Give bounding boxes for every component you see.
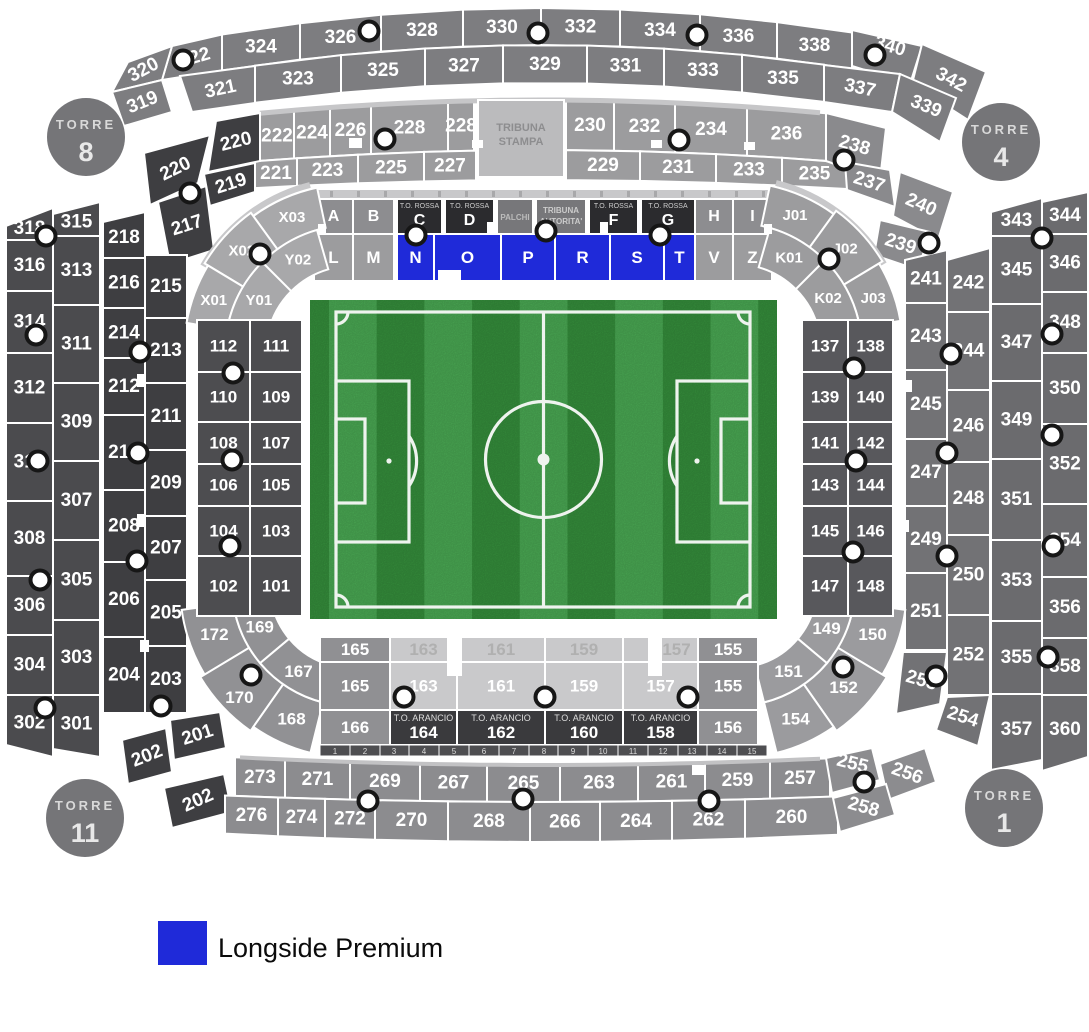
svg-text:149: 149 (812, 619, 840, 638)
svg-text:161: 161 (487, 677, 515, 696)
svg-text:207: 207 (150, 538, 182, 559)
svg-text:165: 165 (341, 640, 369, 659)
svg-text:334: 334 (644, 20, 676, 41)
svg-text:T.O. ARANCIO: T.O. ARANCIO (631, 713, 691, 723)
svg-text:338: 338 (799, 35, 831, 56)
svg-text:11: 11 (71, 818, 100, 848)
svg-text:224: 224 (296, 123, 328, 144)
svg-text:144: 144 (856, 476, 885, 495)
svg-text:5: 5 (452, 747, 457, 756)
svg-text:262: 262 (693, 809, 725, 830)
svg-text:L: L (328, 248, 338, 267)
svg-text:154: 154 (781, 709, 810, 728)
svg-text:276: 276 (236, 805, 268, 826)
svg-text:261: 261 (656, 772, 688, 793)
svg-text:356: 356 (1049, 597, 1081, 618)
svg-text:304: 304 (14, 655, 46, 676)
svg-text:211: 211 (151, 406, 182, 427)
svg-text:N: N (409, 248, 421, 267)
svg-text:155: 155 (714, 640, 742, 659)
svg-text:312: 312 (14, 378, 46, 399)
svg-text:Y01: Y01 (246, 292, 273, 309)
svg-text:Z: Z (747, 248, 757, 267)
svg-text:TRIBUNA: TRIBUNA (496, 122, 546, 134)
svg-text:313: 313 (61, 260, 93, 281)
svg-text:T.O. ARANCIO: T.O. ARANCIO (471, 713, 531, 723)
svg-text:T: T (674, 248, 685, 267)
svg-text:142: 142 (856, 434, 884, 453)
svg-text:260: 260 (776, 807, 808, 828)
svg-text:236: 236 (771, 124, 803, 145)
svg-text:232: 232 (629, 116, 661, 137)
svg-text:110: 110 (210, 388, 237, 407)
svg-text:167: 167 (284, 662, 312, 681)
svg-text:4: 4 (422, 747, 427, 756)
svg-text:332: 332 (565, 17, 597, 38)
svg-text:163: 163 (409, 640, 437, 659)
svg-text:T.O. ROSSA: T.O. ROSSA (450, 203, 490, 210)
svg-text:I: I (750, 208, 754, 225)
svg-text:106: 106 (209, 476, 237, 495)
svg-text:249: 249 (910, 529, 942, 550)
svg-text:159: 159 (570, 677, 598, 696)
svg-text:228: 228 (445, 116, 477, 137)
svg-text:7: 7 (512, 747, 517, 756)
svg-text:241: 241 (910, 269, 942, 290)
svg-text:330: 330 (486, 17, 518, 38)
svg-text:269: 269 (369, 771, 401, 792)
svg-text:13: 13 (688, 747, 697, 756)
svg-text:162: 162 (487, 723, 515, 742)
svg-text:111: 111 (263, 337, 290, 356)
svg-text:234: 234 (695, 119, 727, 140)
svg-text:331: 331 (610, 56, 642, 77)
svg-text:355: 355 (1001, 647, 1033, 668)
svg-text:9: 9 (571, 747, 576, 756)
svg-text:TRIBUNA: TRIBUNA (543, 206, 579, 215)
svg-text:324: 324 (245, 37, 277, 58)
svg-text:143: 143 (811, 476, 839, 495)
svg-text:347: 347 (1001, 332, 1033, 353)
svg-text:101: 101 (262, 577, 290, 596)
svg-text:2: 2 (363, 747, 368, 756)
svg-text:F: F (609, 212, 619, 229)
svg-text:218: 218 (108, 227, 140, 248)
svg-text:1: 1 (333, 747, 338, 756)
svg-text:155: 155 (714, 677, 742, 696)
svg-text:315: 315 (61, 212, 93, 233)
svg-text:235: 235 (799, 163, 831, 184)
svg-text:213: 213 (150, 340, 182, 361)
svg-text:203: 203 (150, 669, 182, 690)
svg-text:333: 333 (687, 60, 719, 81)
svg-text:209: 209 (150, 473, 182, 494)
svg-text:J01: J01 (782, 207, 807, 224)
svg-text:V: V (708, 248, 720, 267)
svg-text:231: 231 (662, 157, 694, 178)
svg-text:250: 250 (953, 565, 985, 586)
svg-text:137: 137 (811, 337, 839, 356)
svg-text:268: 268 (473, 811, 505, 832)
svg-text:109: 109 (262, 388, 290, 407)
svg-text:271: 271 (302, 769, 334, 790)
svg-text:X01: X01 (200, 292, 227, 309)
svg-text:230: 230 (574, 115, 606, 136)
svg-text:233: 233 (733, 160, 765, 181)
svg-text:K01: K01 (775, 250, 803, 267)
svg-text:360: 360 (1049, 719, 1081, 740)
svg-text:8: 8 (78, 137, 93, 167)
svg-text:349: 349 (1001, 410, 1033, 431)
svg-text:205: 205 (150, 603, 182, 624)
svg-text:272: 272 (334, 809, 366, 830)
svg-text:352: 352 (1049, 454, 1081, 475)
svg-text:306: 306 (14, 595, 46, 616)
svg-text:346: 346 (1049, 253, 1081, 274)
svg-text:TORRE: TORRE (55, 798, 115, 813)
svg-text:353: 353 (1001, 570, 1033, 591)
svg-text:150: 150 (858, 625, 886, 644)
svg-text:307: 307 (61, 490, 93, 511)
svg-text:245: 245 (910, 394, 942, 415)
svg-text:351: 351 (1001, 489, 1033, 510)
svg-text:141: 141 (811, 434, 839, 453)
svg-text:212: 212 (108, 376, 140, 397)
svg-text:158: 158 (646, 723, 674, 742)
svg-text:326: 326 (325, 27, 357, 48)
svg-text:329: 329 (529, 54, 561, 75)
svg-text:R: R (576, 248, 588, 267)
svg-text:107: 107 (262, 434, 290, 453)
svg-text:208: 208 (108, 516, 140, 537)
svg-text:309: 309 (61, 412, 93, 433)
svg-text:311: 311 (61, 334, 92, 355)
svg-text:350: 350 (1049, 378, 1081, 399)
svg-text:357: 357 (1001, 719, 1033, 740)
svg-text:140: 140 (856, 388, 884, 407)
svg-text:103: 103 (262, 522, 290, 541)
svg-text:228: 228 (394, 117, 426, 138)
svg-text:215: 215 (150, 276, 182, 297)
svg-text:335: 335 (767, 68, 799, 89)
svg-text:Longside Premium: Longside Premium (218, 933, 443, 963)
svg-text:3: 3 (392, 747, 397, 756)
svg-text:B: B (368, 208, 380, 225)
svg-text:TORRE: TORRE (974, 788, 1034, 803)
svg-text:259: 259 (722, 770, 754, 791)
svg-text:1: 1 (996, 808, 1011, 838)
svg-text:T.O. ROSSA: T.O. ROSSA (594, 203, 634, 210)
svg-text:336: 336 (723, 26, 755, 47)
svg-text:15: 15 (748, 747, 757, 756)
svg-text:102: 102 (209, 577, 237, 596)
svg-text:K02: K02 (814, 290, 842, 307)
svg-text:6: 6 (482, 747, 487, 756)
svg-text:T.O. ROSSA: T.O. ROSSA (400, 203, 440, 210)
svg-text:151: 151 (774, 662, 802, 681)
svg-text:165: 165 (341, 677, 369, 696)
svg-text:138: 138 (856, 337, 884, 356)
svg-text:A: A (328, 208, 340, 225)
svg-text:159: 159 (570, 640, 598, 659)
svg-text:325: 325 (367, 60, 399, 81)
svg-text:223: 223 (312, 160, 344, 181)
svg-text:160: 160 (570, 723, 598, 742)
svg-text:274: 274 (286, 807, 318, 828)
svg-text:252: 252 (953, 645, 985, 666)
svg-text:308: 308 (14, 528, 46, 549)
svg-text:12: 12 (659, 747, 668, 756)
svg-text:152: 152 (829, 678, 857, 697)
svg-text:D: D (464, 212, 476, 229)
svg-text:TORRE: TORRE (56, 117, 116, 132)
svg-text:145: 145 (811, 522, 839, 541)
svg-text:316: 316 (14, 255, 46, 276)
svg-text:146: 146 (856, 522, 884, 541)
svg-text:305: 305 (61, 570, 93, 591)
svg-text:323: 323 (282, 69, 314, 90)
svg-text:327: 327 (448, 55, 480, 76)
svg-text:345: 345 (1001, 260, 1033, 281)
svg-text:4: 4 (993, 142, 1008, 172)
svg-text:221: 221 (260, 163, 292, 184)
svg-text:148: 148 (856, 577, 884, 596)
svg-text:257: 257 (784, 768, 816, 789)
svg-text:166: 166 (341, 718, 369, 737)
svg-text:112: 112 (210, 337, 237, 356)
svg-text:172: 172 (200, 625, 228, 644)
svg-text:105: 105 (262, 476, 290, 495)
svg-text:344: 344 (1049, 205, 1081, 226)
svg-text:270: 270 (396, 810, 428, 831)
svg-text:343: 343 (1001, 210, 1033, 231)
svg-text:267: 267 (438, 772, 470, 793)
svg-text:328: 328 (406, 20, 438, 41)
svg-text:273: 273 (244, 767, 276, 788)
svg-text:168: 168 (277, 709, 305, 728)
svg-text:157: 157 (662, 640, 690, 659)
svg-text:M: M (366, 248, 380, 267)
svg-text:PALCHI: PALCHI (500, 213, 529, 222)
svg-text:139: 139 (811, 388, 839, 407)
svg-text:STAMPA: STAMPA (499, 136, 544, 148)
svg-text:169: 169 (246, 618, 274, 637)
svg-text:14: 14 (718, 747, 727, 756)
svg-text:X03: X03 (279, 209, 306, 226)
svg-text:206: 206 (108, 589, 140, 610)
svg-text:266: 266 (549, 811, 581, 832)
svg-text:247: 247 (910, 462, 942, 483)
svg-text:243: 243 (910, 326, 942, 347)
svg-text:H: H (708, 208, 720, 225)
svg-text:P: P (522, 248, 533, 267)
svg-text:O: O (461, 248, 474, 267)
svg-text:225: 225 (375, 157, 407, 178)
svg-text:246: 246 (953, 416, 985, 437)
svg-text:11: 11 (629, 747, 638, 756)
svg-text:242: 242 (953, 273, 985, 294)
svg-text:T.O. ARANCIO: T.O. ARANCIO (394, 713, 454, 723)
svg-text:T.O. ROSSA: T.O. ROSSA (648, 203, 688, 210)
svg-text:164: 164 (409, 723, 438, 742)
svg-text:S: S (631, 248, 642, 267)
svg-text:216: 216 (108, 273, 140, 294)
svg-text:204: 204 (108, 665, 140, 686)
svg-text:170: 170 (225, 688, 253, 707)
svg-text:J03: J03 (861, 290, 886, 307)
svg-text:161: 161 (487, 640, 515, 659)
svg-text:10: 10 (599, 747, 608, 756)
svg-text:147: 147 (811, 577, 839, 596)
svg-text:264: 264 (620, 811, 652, 832)
svg-text:156: 156 (714, 718, 742, 737)
svg-text:214: 214 (108, 323, 140, 344)
svg-text:TORRE: TORRE (971, 122, 1031, 137)
svg-text:222: 222 (261, 125, 293, 146)
svg-text:Y02: Y02 (285, 252, 312, 269)
svg-text:248: 248 (953, 488, 985, 509)
svg-text:229: 229 (587, 155, 619, 176)
svg-text:251: 251 (910, 601, 942, 622)
svg-text:T.O. ARANCIO: T.O. ARANCIO (554, 713, 614, 723)
svg-text:157: 157 (646, 677, 674, 696)
svg-text:301: 301 (61, 714, 93, 735)
svg-text:303: 303 (61, 647, 93, 668)
svg-text:263: 263 (583, 773, 615, 794)
svg-text:8: 8 (542, 747, 547, 756)
svg-text:227: 227 (434, 156, 466, 177)
